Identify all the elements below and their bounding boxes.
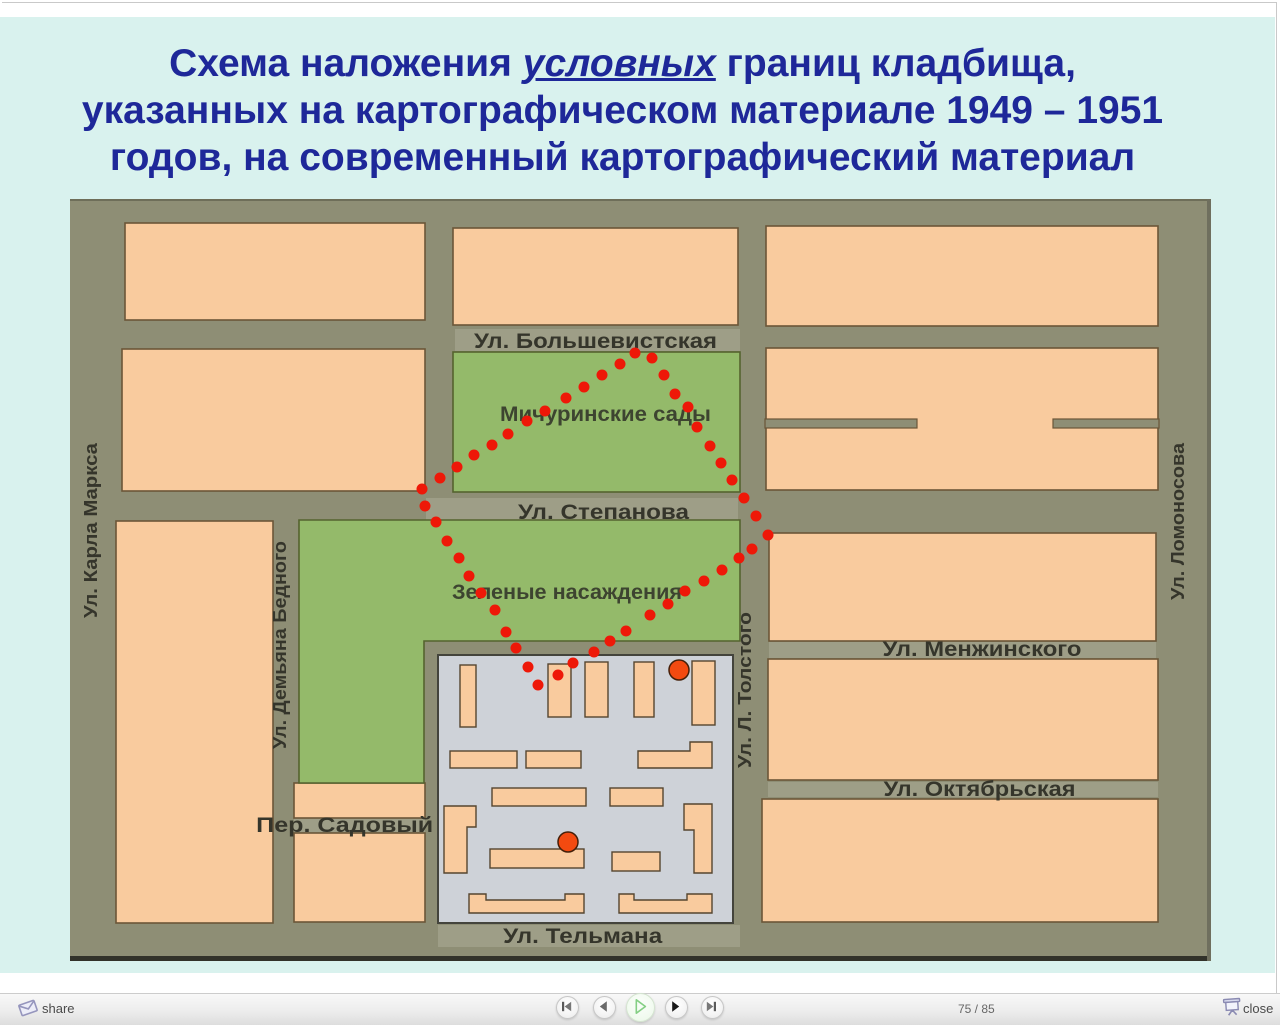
svg-text:Ул. Ломоносова: Ул. Ломоносова — [1168, 442, 1188, 600]
svg-text:Пер. Садовый: Пер. Садовый — [256, 814, 433, 837]
svg-text:Ул. Карла Маркса: Ул. Карла Маркса — [81, 442, 101, 618]
svg-text:Ул. Тельмана: Ул. Тельмана — [503, 925, 662, 948]
svg-text:Ул. Демьяна Бедного: Ул. Демьяна Бедного — [270, 541, 290, 749]
svg-text:Ул. Л. Толстого: Ул. Л. Толстого — [735, 612, 755, 768]
svg-text:Зеленые насаждения: Зеленые насаждения — [452, 581, 682, 604]
svg-text:Ул. Октябрьская: Ул. Октябрьская — [884, 778, 1076, 801]
svg-text:Ул. Степанова: Ул. Степанова — [518, 501, 689, 524]
svg-text:Ул. Большевистская: Ул. Большевистская — [474, 330, 717, 353]
svg-text:Ул. Менжинского: Ул. Менжинского — [883, 638, 1082, 661]
